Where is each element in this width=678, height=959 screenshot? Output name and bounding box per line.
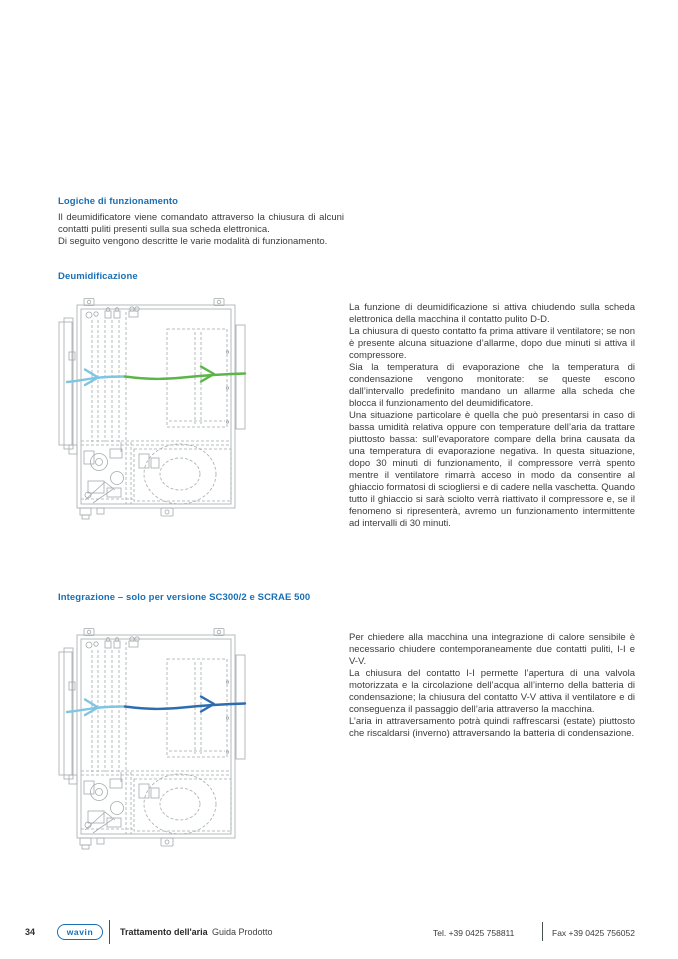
section-heading-deumidificazione: Deumidificazione [58,271,618,282]
paragraph: Il deumidificatore viene comandato attra… [58,212,344,236]
wavin-logo-text: wavin [67,927,94,937]
paragraph: Di seguito vengono descritte le varie mo… [58,236,344,248]
integration-text: Per chiedere alla macchina una integrazi… [349,632,635,740]
page-number: 34 [25,927,35,937]
paragraph: La chiusura del contatto I-I permette l’… [349,668,635,716]
intro-text: Il deumidificatore viene comandato attra… [58,212,344,248]
footer-divider [542,922,543,941]
machine-drawing [55,622,345,860]
wavin-logo: wavin [57,924,103,940]
paragraph: Una situazione particolare è quella che … [349,410,635,530]
document-subtitle: Guida Prodotto [212,927,273,937]
page-footer: 34 wavin Trattamento dell'aria Guida Pro… [0,918,678,948]
section-heading-logiche: Logiche di funzionamento [58,196,618,207]
paragraph: Per chiedere alla macchina una integrazi… [349,632,635,668]
footer-divider [109,920,110,944]
integration-airflow-diagram [55,622,345,860]
dehumidification-text: La funzione di deumidificazione si attiv… [349,302,635,530]
paragraph: La funzione di deumidificazione si attiv… [349,302,635,326]
section-heading-integrazione: Integrazione – solo per versione SC300/2… [58,592,618,603]
paragraph: L’aria in attraversamento potrà quindi r… [349,716,635,740]
dehumidification-airflow-diagram [55,292,345,530]
fax-number: Fax +39 0425 756052 [552,928,635,938]
machine-drawing [55,292,345,530]
document-title: Trattamento dell'aria [120,927,208,937]
document-page: Logiche di funzionamento Il deumidificat… [0,0,678,959]
paragraph: Sia la temperatura di evaporazione che l… [349,362,635,410]
airflow-in-arrow [67,370,125,386]
paragraph: La chiusura di questo contatto fa prima … [349,326,635,362]
telephone-number: Tel. +39 0425 758811 [433,928,514,938]
airflow-in-arrow [67,700,125,716]
